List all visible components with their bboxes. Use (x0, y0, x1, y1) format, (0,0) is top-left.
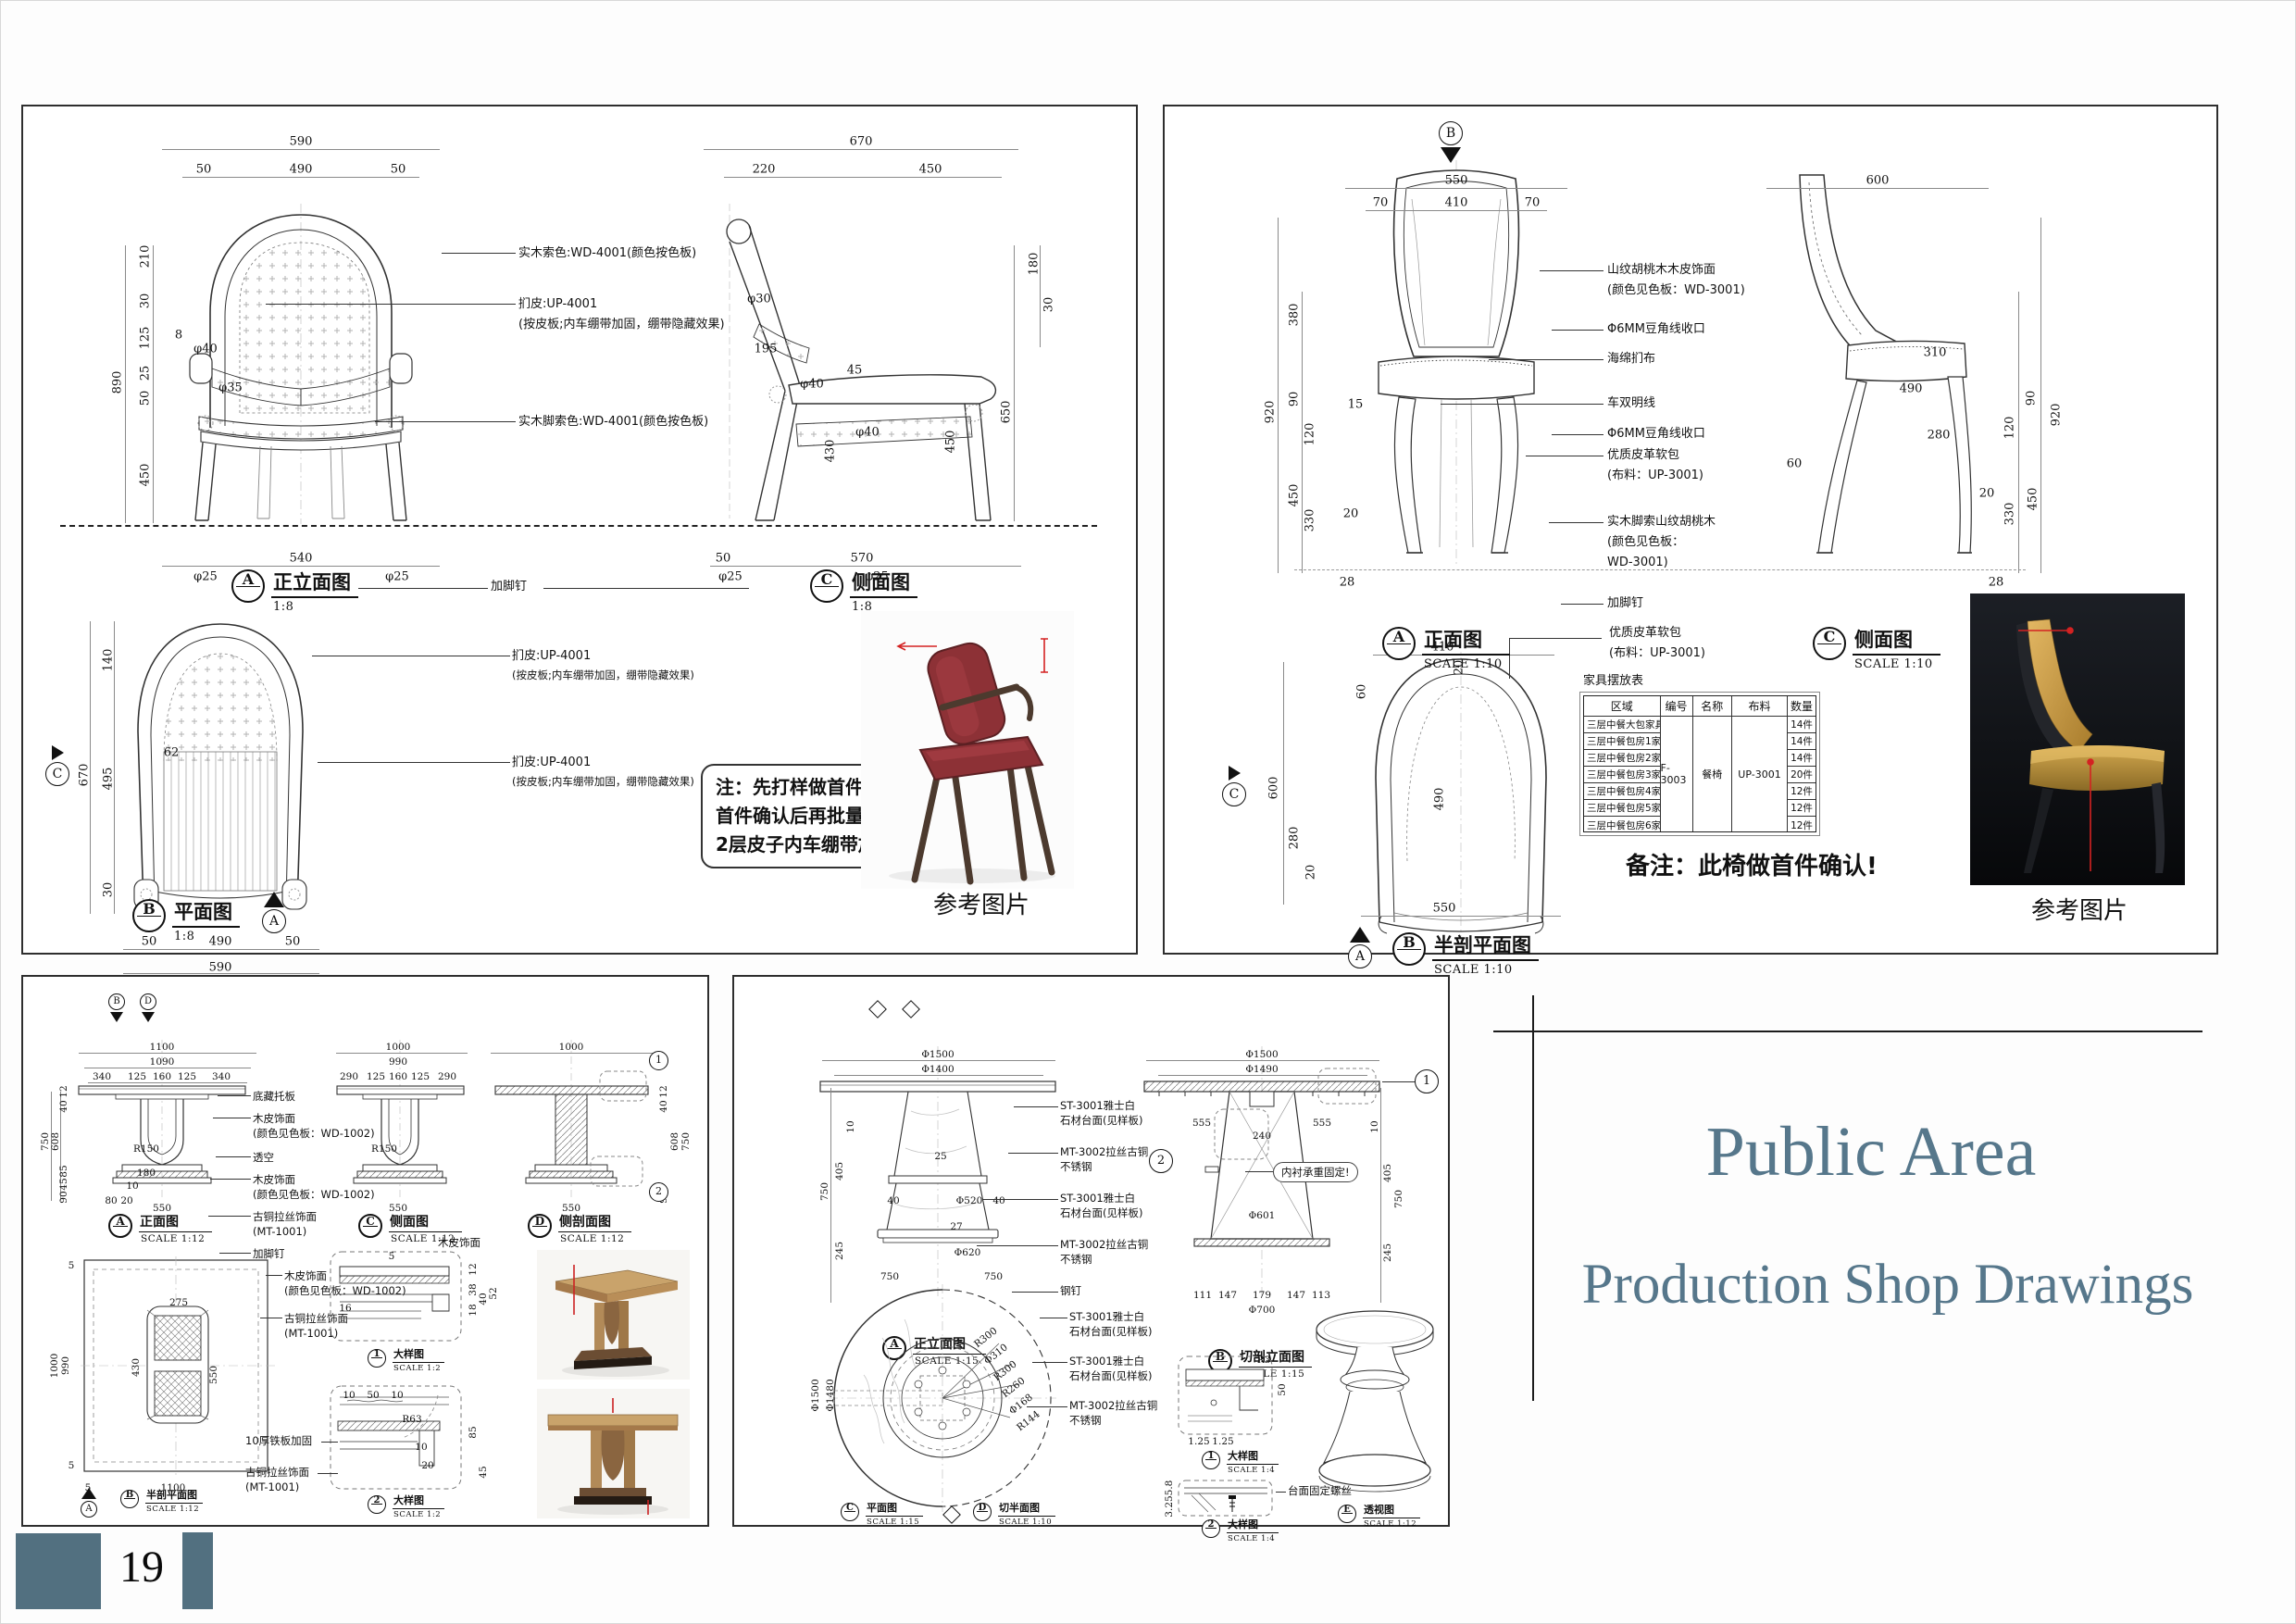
view-title-detail1: 1 大样图SCALE 1:4 (1202, 1451, 1279, 1475)
label-steel-nail: 钢钉 (1060, 1284, 1081, 1298)
leader-line (1245, 1171, 1273, 1172)
view-bubble: B (120, 1490, 139, 1508)
view-bubble: D (528, 1214, 552, 1238)
dim-line (1366, 210, 1547, 211)
view-scale: 1:8 (271, 598, 358, 614)
view-bubble: C (1813, 627, 1846, 660)
dim-label: 600 (1268, 777, 1280, 800)
dim-label: R3 (1257, 1355, 1271, 1366)
section-marker-down: D (140, 993, 156, 1022)
view-scale: 1:8 (172, 928, 240, 943)
section-marker-right: C (1222, 766, 1246, 806)
dim-line (1766, 188, 1989, 189)
dim-label: 405 (1383, 1164, 1393, 1182)
view-name: 平面图 (866, 1503, 923, 1517)
roundtable-perspective-drawing (1313, 1296, 1438, 1500)
dim-label: 62 (164, 747, 180, 759)
dim-label: 990 (61, 1356, 71, 1375)
dim-label: 10 (846, 1120, 856, 1132)
view-name: 切半面图 (998, 1503, 1055, 1517)
view-name: 正面图 (1422, 627, 1510, 656)
leader-line (1382, 1081, 1415, 1082)
leader-line (318, 762, 510, 763)
view-bubble: 2 (368, 1495, 386, 1514)
dim-label: 50 (716, 553, 731, 565)
leader-line (1552, 434, 1603, 435)
material-label: 古铜拉丝饰面 (245, 1466, 309, 1480)
view-bubble: 2 (1202, 1519, 1220, 1538)
dim-label: 50 (391, 164, 406, 176)
dim-line (1278, 218, 1279, 573)
leader-line (375, 421, 516, 422)
page-number: 19 (99, 1542, 184, 1593)
material-label-wood: 实木索色:WD-4001(颜色按色板) (518, 245, 696, 263)
view-name: 侧剖面图 (558, 1214, 631, 1232)
dim-label: 50 (285, 936, 301, 948)
view-title-front: A 正面图SCALE 1:12 (108, 1214, 212, 1244)
leader-line (318, 1473, 338, 1474)
table-cell-area: 三层中餐包房1家具 (1584, 733, 1660, 750)
dim-line (834, 1075, 1043, 1076)
material-label: (颜色见色板： (1607, 534, 1684, 552)
dim-label: 8 (175, 330, 182, 342)
dim-line (1158, 1075, 1367, 1076)
roundtable-detail2-drawing (1177, 1479, 1274, 1518)
material-label: Φ6MM豆角线收口 (1607, 321, 1705, 339)
table-cell-qty: 12件 (1788, 800, 1816, 817)
material-label: 优质皮革软包 (1607, 447, 1679, 465)
view-scale: SCALE 1:15 (866, 1517, 923, 1527)
dim-label: φ35 (218, 382, 243, 394)
dim-label: 608 (670, 1132, 680, 1151)
view-bubble: 1 (368, 1349, 386, 1368)
dim-label: 750 (1394, 1190, 1404, 1208)
dim-label: 1.25 (1188, 1437, 1209, 1447)
dim-label: 750 (880, 1272, 899, 1282)
dim-line (182, 177, 419, 178)
table-cell-code: F-3003 (1661, 717, 1692, 831)
table-cell-qty: 12件 (1788, 783, 1816, 800)
triangle-up-icon (264, 892, 284, 907)
dim-label: Φ1490 (1245, 1065, 1278, 1075)
marker-letter: C (1222, 782, 1246, 806)
diningchair-side-drawing (1766, 160, 1989, 568)
dim-label: 555 (1192, 1118, 1211, 1129)
leader-line (266, 1275, 282, 1276)
dim-label: 10 (415, 1443, 427, 1453)
dim-label: 180 (137, 1168, 156, 1179)
material-label: 实木脚索山纹胡桃木 (1607, 514, 1716, 531)
panel-dining-chair: B 550 70 (1163, 105, 2218, 955)
table-col-code: 编号 F-3003 (1661, 696, 1693, 831)
dim-label: 550 (153, 1204, 171, 1214)
dim-line (491, 1053, 655, 1054)
leader-line (210, 1179, 251, 1180)
dim-label: 15 (1348, 399, 1364, 411)
dim-label: Φ700 (1249, 1305, 1276, 1316)
dim-label: 450 (140, 464, 152, 487)
material-label: (MT-1001) (245, 1480, 299, 1494)
dim-label: R150 (133, 1144, 159, 1155)
dim-label: 1100 (150, 1043, 175, 1053)
dim-label: 330 (2004, 503, 2016, 526)
dim-line (822, 1060, 1055, 1061)
view-scale: SCALE 1:12 (558, 1232, 631, 1244)
table-cell-area: 三层中餐包房3家具 (1584, 767, 1660, 783)
dim-label: 670 (79, 764, 91, 787)
dim-label: 179 (1253, 1291, 1271, 1301)
dim-label: 5.8 (1165, 1480, 1175, 1496)
leader-line (312, 656, 510, 656)
view-scale: SCALE 1:2 (393, 1509, 444, 1519)
view-bubble: A (108, 1214, 132, 1238)
view-title-side: C 侧面图SCALE 1:10 (1813, 627, 1940, 671)
material-label: 木皮饰面 (253, 1112, 295, 1126)
leader-line (1276, 1492, 1286, 1493)
leader-line (321, 1442, 338, 1443)
dim-label: φ25 (193, 571, 218, 583)
ground-line (60, 525, 1097, 527)
dim-line (1014, 245, 1015, 521)
dim-label: 85 (468, 1426, 479, 1438)
dim-label: 430 (131, 1358, 142, 1377)
dim-line (153, 245, 154, 523)
dim-label: 80 (105, 1196, 117, 1206)
material-label: 石材台面(见样板) (1060, 1114, 1142, 1128)
dim-label: 1000 (559, 1043, 584, 1053)
dim-line (704, 149, 1018, 150)
dim-label: 245 (1383, 1243, 1393, 1262)
dim-label: Φ601 (1249, 1211, 1276, 1221)
triangle-up-icon (1350, 927, 1370, 943)
dim-label: Φ620 (955, 1248, 981, 1258)
view-title-halfplan: B 半剖平面图SCALE 1:12 (120, 1490, 203, 1514)
section-marker-down: B (1439, 121, 1463, 163)
dim-label: 280 (1289, 827, 1301, 850)
material-label-leg: 实木脚索色:WD-4001(颜色按色板) (518, 414, 708, 431)
material-label: 木皮饰面 (284, 1269, 327, 1283)
dim-label: 450 (2028, 488, 2040, 511)
material-label-upholstery: 扪皮:UP-4001 (512, 648, 591, 666)
material-label: 木皮饰面 (438, 1236, 480, 1250)
table-header: 名称 (1693, 696, 1732, 717)
detail-callout: 1 (649, 1051, 668, 1070)
dim-label: 147 (1218, 1291, 1237, 1301)
detail-callout: 2 (1149, 1149, 1173, 1173)
dim-label: 570 (851, 553, 874, 565)
dim-label: 1090 (150, 1057, 175, 1068)
footer-accent-block-small (182, 1532, 213, 1609)
dim-label: 550 (1445, 175, 1468, 187)
leader-line (442, 253, 516, 254)
material-label: 不锈钢 (1060, 1253, 1092, 1267)
dim-label: 220 (753, 164, 776, 176)
dim-label: 45 (479, 1466, 489, 1478)
view-title-side: C 侧面图1:8 (810, 569, 917, 614)
material-label: Φ6MM豆角线收口 (1607, 426, 1705, 443)
dim-label: 10 (391, 1391, 403, 1401)
dim-label: 280 (1928, 430, 1951, 442)
dim-label: 540 (290, 553, 313, 565)
table-cell-area: 三层中餐包房5家具 (1584, 800, 1660, 817)
view-name: 正面图 (139, 1214, 212, 1232)
dim-label: 40 (887, 1196, 899, 1206)
dim-label: 920 (1265, 401, 1277, 424)
material-label-upholstery-note: (按皮板;内车绷带加固，绷带隐藏效果) (512, 668, 694, 682)
material-label-upholstery: 扪皮:UP-4001 (518, 296, 597, 314)
dim-label: 195 (755, 344, 778, 356)
view-title-plan: B 平面图1:8 (132, 899, 240, 943)
view-scale: 1:8 (850, 598, 917, 614)
dim-label: R150 (371, 1144, 397, 1155)
dim-line (724, 177, 1002, 178)
leader-line (1540, 270, 1603, 271)
leader-line (1489, 359, 1603, 360)
view-scale: SCALE 1:10 (998, 1517, 1055, 1527)
dim-line (2040, 218, 2041, 573)
leader-line (266, 304, 516, 305)
material-label: MT-3002拉丝古铜 (1060, 1238, 1148, 1252)
table-cell-area: 三层中餐大包家具 (1584, 717, 1660, 733)
leader-line (1014, 1106, 1058, 1107)
dim-label: R63 (402, 1415, 421, 1425)
dim-label: 60 (1356, 684, 1368, 700)
view-bubble: E (1338, 1505, 1356, 1523)
view-name: 侧面图 (1853, 627, 1940, 656)
dim-label: 111 (1193, 1291, 1212, 1301)
material-label: (布料：UP-3001) (1607, 468, 1703, 485)
dim-label: 70 (1373, 197, 1389, 209)
table-col-area: 区域 三层中餐大包家具三层中餐包房1家具三层中餐包房2家具三层中餐包房3家具三层… (1584, 696, 1661, 831)
dim-label: 380 (1289, 304, 1301, 327)
dim-label: 147 (1287, 1291, 1305, 1301)
label-foot-nail: 加脚钉 (491, 579, 527, 596)
material-label: ST-3001雅士白 (1060, 1099, 1135, 1113)
dim-label: 450 (919, 164, 942, 176)
dim-label: 405 (835, 1162, 845, 1181)
sheet-title-line2: Production Shop Drawings (1530, 1253, 2245, 1318)
dim-label: 550 (209, 1366, 219, 1384)
table-cell-qty: 14件 (1788, 750, 1816, 767)
dim-label: 490 (290, 164, 313, 176)
view-title-perspective: E 透视图SCALE 1:12 (1338, 1505, 1420, 1529)
dim-label: 12 (59, 1085, 69, 1097)
table-header: 数量 (1788, 696, 1816, 717)
dim-label: 210 (140, 245, 152, 269)
material-label-upholstery-note: (按皮板;内车绷带加固，绷带隐藏效果) (518, 317, 725, 334)
panel-round-table: Φ1500 Φ1400 750 405 245 10 25 Φ520 27 Φ6… (732, 975, 1450, 1527)
material-label: MT-3002拉丝古铜 (1069, 1399, 1157, 1413)
marker-letter: A (1348, 944, 1372, 968)
dim-label: 1000 (386, 1043, 411, 1053)
dim-label: 160 (153, 1072, 171, 1082)
marker-letter: B (108, 993, 125, 1010)
dim-label: φ40 (800, 379, 824, 391)
dim-label: 60 (1787, 458, 1803, 470)
leader-line (1027, 1406, 1067, 1407)
dim-label: 555 (1313, 1118, 1331, 1129)
panel-square-table: B D (21, 975, 709, 1527)
view-scale: SCALE 1:10 (1422, 656, 1510, 671)
material-label: 石材台面(见样板) (1069, 1325, 1152, 1339)
dim-label: 750 (681, 1132, 692, 1151)
view-name: 大样图 (1227, 1451, 1279, 1465)
dim-label: 125 (178, 1072, 196, 1082)
dim-label: 40 (479, 1293, 489, 1305)
dim-label: 990 (389, 1057, 407, 1068)
panel-armchair: 590 50 490 50 210 30 125 25 50 890 450 8… (21, 105, 1138, 955)
dim-label: 450 (1289, 484, 1301, 507)
dim-label: Φ1400 (921, 1065, 954, 1075)
view-bubble: C (358, 1214, 382, 1238)
dim-label: 275 (169, 1298, 188, 1308)
dim-label: 340 (212, 1072, 231, 1082)
leader-line (1040, 1318, 1067, 1318)
dim-label: 40 (59, 1100, 69, 1112)
view-bubble: C (841, 1503, 859, 1521)
dim-line (1146, 1060, 1379, 1061)
dim-label: φ25 (718, 571, 742, 583)
table-cell-qty: 14件 (1788, 717, 1816, 733)
dim-label: 125 (140, 327, 152, 350)
dim-label: 12 (468, 1263, 479, 1275)
dim-label: 5 (69, 1261, 75, 1271)
view-scale: SCALE 1:12 (1363, 1518, 1420, 1529)
dim-label: 85 (59, 1165, 69, 1177)
section-marker-right: C (45, 745, 69, 786)
leader-line (1509, 638, 1602, 639)
dim-label: 410 (1445, 197, 1468, 209)
reference-photo-squaretable-angled (537, 1250, 690, 1380)
dim-label: 140 (103, 649, 115, 672)
view-title-plan: C 平面图SCALE 1:15 (841, 1503, 923, 1527)
view-bubble: C (810, 569, 843, 603)
dim-label: 920 (2051, 404, 2063, 427)
dim-line (123, 949, 319, 950)
dim-label: 245 (835, 1242, 845, 1260)
view-title-halfplan: D 切半面图SCALE 1:10 (973, 1503, 1055, 1527)
material-label: (颜色见色板：WD-1002) (253, 1188, 375, 1202)
dim-label: 5 (389, 1252, 395, 1262)
dim-label: 120 (1304, 423, 1316, 446)
view-title-detail2: 2 大样图SCALE 1:2 (368, 1495, 444, 1519)
dim-label: 290 (438, 1072, 456, 1082)
dim-line (1345, 188, 1567, 189)
table-cell-name: 餐椅 (1693, 717, 1732, 831)
reference-photo-diningchair (1970, 593, 2185, 885)
table-col-qty: 数量 14件14件14件20件12件12件12件 (1788, 696, 1816, 831)
dim-label: 450 (945, 431, 957, 454)
dim-label: 50 (1278, 1383, 1288, 1395)
view-name: 透视图 (1363, 1505, 1420, 1518)
dim-label: 10 (343, 1391, 355, 1401)
table-cell-qty: 20件 (1788, 767, 1816, 783)
material-label: 石材台面(见样板) (1060, 1206, 1142, 1220)
view-scale: SCALE 1:10 (1853, 656, 1940, 671)
view-title-front: A 正面图SCALE 1:10 (1382, 627, 1510, 671)
armchair-plan-drawing (123, 611, 318, 917)
table-header: 布料 (1732, 696, 1787, 717)
roundtable-detail1-drawing (1177, 1355, 1274, 1436)
material-label: 底藏托板 (253, 1090, 295, 1104)
dim-label: 45 (59, 1178, 69, 1190)
material-label: ST-3001雅士白 (1060, 1192, 1135, 1206)
view-title-section: D 侧剖面图SCALE 1:12 (528, 1214, 631, 1244)
view-title-detail1: 1 大样图SCALE 1:2 (368, 1349, 444, 1373)
table-cell-fabric: UP-3001 (1732, 717, 1787, 831)
dim-label: 10 (1370, 1120, 1380, 1132)
view-name: 大样图 (1227, 1519, 1279, 1533)
dim-label: Φ520 (956, 1196, 983, 1206)
dim-label: 310 (1924, 347, 1947, 359)
dim-line (1380, 1088, 1381, 1303)
dim-label: 45 (847, 365, 863, 377)
dim-label: 10 (126, 1181, 138, 1192)
dim-line (830, 1088, 831, 1303)
leader-line (216, 1156, 251, 1157)
view-bubble: A (231, 569, 265, 603)
view-title-front: A 正立面图1:8 (231, 569, 358, 614)
dim-label: 550 (389, 1204, 407, 1214)
view-name: 半剖平面图 (1432, 932, 1539, 961)
dim-label: 90 (1289, 392, 1301, 407)
dim-label: 650 (1001, 401, 1013, 424)
titleblock-horizontal-rule (1493, 1031, 2202, 1032)
material-label: (颜色见色板：WD-3001) (1607, 282, 1745, 300)
leader-line (1008, 1153, 1058, 1154)
view-scale: SCALE 1:4 (1227, 1533, 1279, 1543)
material-label: 车双明线 (1607, 395, 1655, 413)
dim-label: 25 (140, 366, 152, 381)
section-marker-up: A (262, 892, 286, 933)
table-col-fabric: 布料 UP-3001 (1732, 696, 1788, 831)
leader-line (543, 588, 749, 589)
dim-label: 20 (1979, 488, 1995, 500)
dim-label: 490 (1434, 788, 1446, 811)
dim-label: φ40 (855, 427, 880, 439)
marker-letter: C (45, 762, 69, 786)
dim-line (1283, 662, 1284, 905)
dim-label: Φ1500 (1245, 1050, 1278, 1060)
table-cell-qty: 14件 (1788, 733, 1816, 750)
leader-line (358, 588, 488, 589)
dim-line (710, 566, 1021, 567)
reference-photo-armchair (861, 611, 1074, 889)
dim-label: 750 (984, 1272, 1003, 1282)
dim-label: 20 (120, 1196, 132, 1206)
dim-label: Φ1500 (811, 1379, 821, 1411)
material-label: 不锈钢 (1069, 1414, 1102, 1428)
leader-line (1561, 604, 1603, 605)
view-title-halfplan: B 半剖平面图SCALE 1:10 (1392, 932, 1539, 977)
dim-label: 1000 (50, 1354, 60, 1379)
dim-label: φ25 (385, 571, 409, 583)
dim-label: 125 (128, 1072, 146, 1082)
photo-caption: 参考图片 (926, 886, 1037, 920)
leader-line (982, 1199, 1058, 1200)
table-cell-area: 三层中餐包房4家具 (1584, 783, 1660, 800)
dim-line (125, 245, 126, 523)
squaretable-section-drawing (491, 1032, 653, 1204)
dim-label: 40 (992, 1196, 1004, 1206)
material-label: (布料：UP-3001) (1609, 645, 1705, 663)
dim-line (336, 1053, 468, 1054)
section-marker-diamond (902, 1000, 920, 1018)
dim-label: 160 (389, 1072, 407, 1082)
view-bubble: B (132, 899, 166, 932)
dim-label: Φ1480 (826, 1379, 836, 1411)
dim-label: 40 (659, 1100, 669, 1112)
